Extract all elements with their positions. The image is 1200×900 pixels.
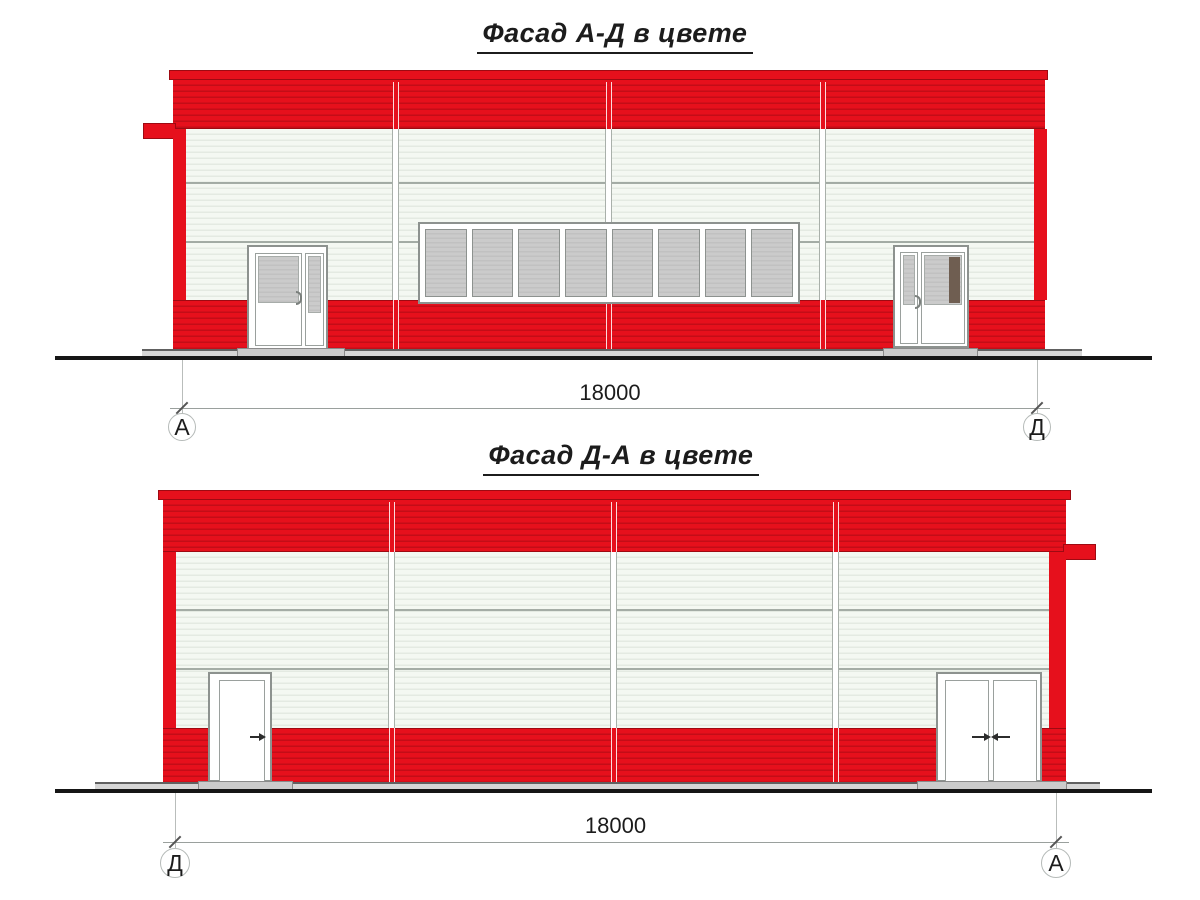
axis-marker-right: А [1041,848,1071,878]
door-leaf [219,680,265,782]
entrance-door-left [208,672,272,782]
corner-column-right [1049,552,1066,728]
bay-mullion [606,300,612,349]
dimension-label: 18000 [31,813,1200,839]
bay-mullion [833,502,839,552]
axis-marker-left: Д [160,848,190,878]
dimension-label: 18000 [20,380,1200,406]
facade-da-title-text: Фасад Д-А в цвете [483,440,760,476]
window-pane [705,229,747,297]
window-pane [472,229,514,297]
drawing-sheet: Фасад А-Д в цвете [0,0,1200,900]
bay-mullion [820,82,826,129]
bay-mullion [819,129,826,300]
door-leaf [993,680,1037,782]
door-dark-panel [949,257,960,303]
door-sidelight [305,253,324,346]
facade-ad-title-text: Фасад А-Д в цвете [477,18,754,54]
entrance-door-right [936,672,1042,782]
bay-mullion [610,552,617,728]
bay-mullion [606,82,612,129]
axis-letter: Д [1029,416,1045,439]
gutter-outlet [1063,544,1096,560]
entrance-door-right [893,245,969,348]
ground-line [55,356,1152,360]
door-glass [308,256,321,313]
door-handle-icon [972,736,985,738]
door-leaf [921,252,965,344]
window-pane [658,229,700,297]
window-pane [751,229,793,297]
bay-mullion [611,728,617,782]
facade-da-title: Фасад Д-А в цвете [42,440,1200,476]
window-pane [518,229,560,297]
bay-mullion [393,300,399,349]
door-handle-icon [997,736,1010,738]
axis-letter: А [174,416,189,439]
parapet-cap [169,70,1048,80]
bay-mullion [832,552,839,728]
door-leaf [945,680,989,782]
gutter-outlet [143,123,176,139]
bay-mullion [820,300,826,349]
bay-mullion [389,502,395,552]
corner-column-left [163,552,176,728]
bay-mullion [388,552,395,728]
bay-mullion [389,728,395,782]
axis-letter: А [1048,852,1063,875]
door-handle-icon [250,736,260,738]
ground-line [55,789,1152,793]
bay-mullion [833,728,839,782]
axis-marker-right: Д [1023,413,1051,441]
axis-letter: Д [167,852,183,875]
dimension-line [170,408,1050,409]
facade-ad-title: Фасад А-Д в цвете [30,18,1200,54]
window-band [418,222,800,304]
parapet-cap [158,490,1071,500]
bay-mullion [392,129,399,300]
door-glass [258,256,299,303]
axis-marker-left: А [168,413,196,441]
bay-mullion [393,82,399,129]
door-glass [903,255,915,305]
entrance-door-left [247,245,328,350]
window-pane [612,229,654,297]
window-pane [425,229,467,297]
corner-column-left [173,129,186,300]
window-pane [565,229,607,297]
bay-mullion [611,502,617,552]
door-leaf [255,253,302,346]
dimension-line [163,842,1069,843]
corner-column-right [1034,129,1047,300]
